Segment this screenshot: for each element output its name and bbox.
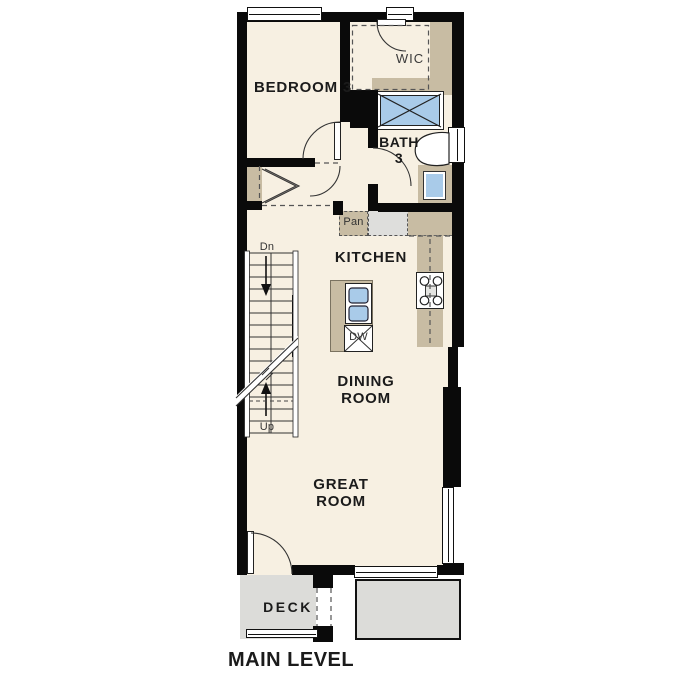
sink-basin-bottom [349, 306, 368, 321]
wic-door-arc [377, 22, 406, 51]
hall-door-arc [310, 166, 340, 196]
wic-label: WIC [380, 52, 440, 67]
plan-linework [0, 0, 687, 687]
kitchen-label: KITCHEN [331, 250, 411, 267]
bath3-label: BATH 3 [376, 135, 422, 166]
deck-label: DECK [250, 600, 326, 616]
burner [433, 277, 442, 286]
great-room-label: GREAT ROOM [298, 477, 384, 511]
burner [420, 296, 429, 305]
burner [433, 296, 442, 305]
staircase [236, 251, 298, 437]
stove-center [426, 286, 437, 296]
shower-x [378, 94, 441, 127]
closet-bifold-door [262, 169, 299, 203]
stairs-down-label: Dn [251, 241, 283, 253]
floorplan-canvas: BEDROOM 3 WIC BATH 3 Pan KITCHEN DW Dn U… [0, 0, 687, 687]
dining-room-label: DINING ROOM [323, 374, 409, 408]
dishwasher-label: DW [345, 331, 372, 343]
island-sink-basins [349, 288, 368, 321]
burner [420, 277, 429, 286]
pantry-label: Pan [340, 216, 367, 228]
bedroom-door-arc [303, 122, 340, 159]
stove-burners [420, 277, 442, 305]
dashed-lines [260, 26, 452, 627]
deck-door-arc [251, 533, 292, 574]
sink-basin-top [349, 288, 368, 303]
plan-title: MAIN LEVEL [228, 649, 448, 671]
bedroom3-label: BEDROOM 3 [238, 80, 368, 97]
stairs-up-label: Up [251, 421, 283, 433]
stair-stringer-left [245, 251, 250, 437]
stair-down-arrow-head [261, 284, 271, 296]
stair-up-arrow-head [261, 382, 271, 394]
